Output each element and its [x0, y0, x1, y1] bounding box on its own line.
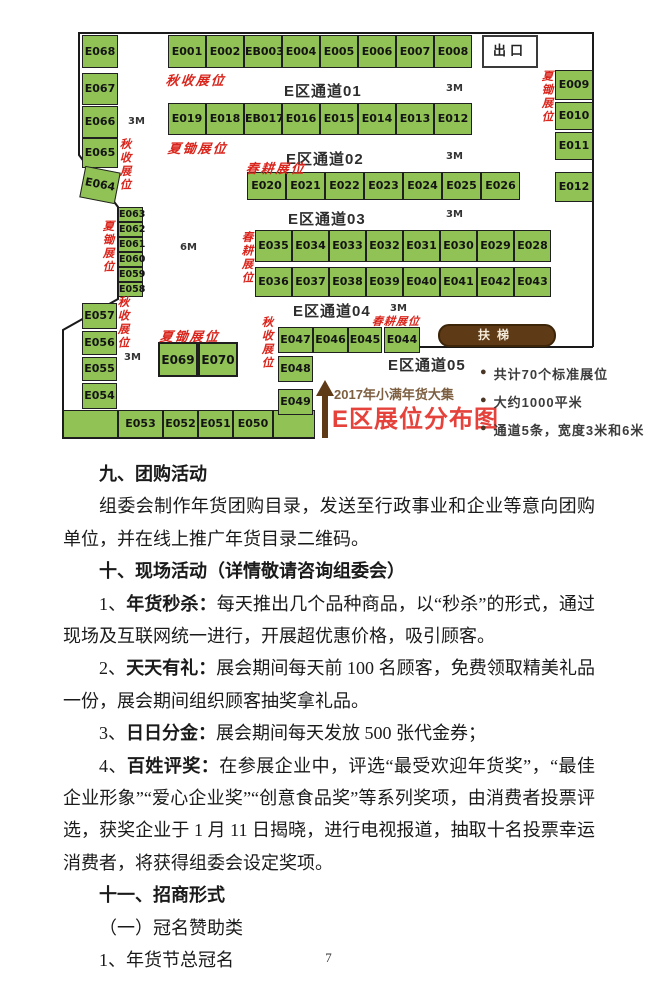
- paragraph: 3、日日分金：展会期间每天发放 500 张代金券；: [63, 717, 595, 749]
- dimension-label: 3M: [446, 83, 463, 94]
- aisle-label: E区通道03: [288, 208, 366, 229]
- booth-E039: E039: [366, 267, 403, 297]
- seasonal-label: 春耕展位: [241, 231, 253, 285]
- booth-E051: E051: [198, 410, 233, 438]
- booth-E022: E022: [325, 172, 364, 200]
- booth-E037: E037: [292, 267, 329, 297]
- booth-E031: E031: [403, 230, 440, 262]
- booth-E008: E008: [434, 35, 472, 68]
- booth-E033: E033: [329, 230, 366, 262]
- seasonal-label: 秋收展位: [119, 138, 131, 192]
- booth-E059: E059: [118, 267, 143, 282]
- dimension-label: 3M: [446, 209, 463, 220]
- booth-E014: E014: [358, 103, 396, 135]
- paragraph: 组委会制作年货团购目录，发送至行政事业和企业等意向团购单位，并在线上推广年货目录…: [63, 490, 595, 555]
- booth-E043: E043: [514, 267, 551, 297]
- booth-E004: E004: [282, 35, 320, 68]
- dimension-label: 3M: [128, 116, 145, 127]
- booth-E036: E036: [255, 267, 292, 297]
- legend-bullet-text: 共计70个标准展位: [494, 364, 608, 383]
- booth-E035: E035: [255, 230, 292, 262]
- booth-E058: E058: [118, 282, 143, 297]
- booth-E007: E007: [396, 35, 434, 68]
- run-text: 3、: [99, 723, 126, 743]
- legend-bullet-text: 大约1000平米: [494, 392, 583, 411]
- run-text: 组委会制作年货团购目录，发送至行政事业和企业等意向团购单位，并在线上推广年货目录…: [63, 496, 595, 548]
- run-text: 4、: [99, 756, 127, 776]
- booth-E056: E056: [82, 331, 117, 355]
- booth-E034: E034: [292, 230, 329, 262]
- paragraph: 2、天天有礼：展会期间每天前 100 名顾客，免费领取精美礼品一份，展会期间组织…: [63, 652, 595, 717]
- legend-bullet-item: ●通道5条，宽度3米和6米: [480, 420, 650, 439]
- booth-E032: E032: [366, 230, 403, 262]
- booth-E045: E045: [348, 327, 382, 353]
- seasonal-label: 夏锄展位: [102, 220, 114, 274]
- booth-E055: E055: [82, 357, 117, 381]
- booth-E048: E048: [278, 356, 313, 382]
- booth-E047: E047: [278, 327, 313, 353]
- section-heading: 十一、招商形式: [63, 879, 595, 911]
- booth-E041: E041: [440, 267, 477, 297]
- paragraph: 4、百姓评奖：在参展企业中，评选“最受欢迎年货奖”，“最佳企业形象”“爱心企业奖…: [63, 750, 595, 880]
- booth-EB003: EB003: [244, 35, 282, 68]
- map-title-line2: E区展位分布图: [332, 399, 499, 434]
- booth-E010: E010: [555, 102, 593, 130]
- booth-E040: E040: [403, 267, 440, 297]
- page-number: 7: [0, 950, 657, 966]
- booth-E012: E012: [555, 172, 593, 202]
- booth-E070: E070: [198, 342, 238, 377]
- run-bold: 年货秒杀：: [126, 594, 217, 614]
- booth-E023: E023: [364, 172, 403, 200]
- booth-E009: E009: [555, 70, 593, 100]
- map-legend-bullets: ●共计70个标准展位●大约1000平米●通道5条，宽度3米和6米: [480, 364, 650, 448]
- run-text: 2、: [99, 658, 126, 678]
- booth-E038: E038: [329, 267, 366, 297]
- escalator: 扶梯: [438, 324, 556, 347]
- booth-E013: E013: [396, 103, 434, 135]
- run-bold: 日日分金：: [126, 723, 216, 743]
- booth-E018: E018: [206, 103, 244, 135]
- booth-E062: E062: [118, 222, 143, 237]
- booth-E046: E046: [313, 327, 348, 353]
- booth-E028: E028: [514, 230, 551, 262]
- booth-E001: E001: [168, 35, 206, 68]
- booth-E063: E063: [118, 207, 143, 222]
- booth-E054: E054: [82, 383, 117, 409]
- booth-E026: E026: [481, 172, 520, 200]
- booth-E066: E066: [82, 106, 118, 138]
- run-text: 1、: [99, 594, 126, 614]
- booth-E029: E029: [477, 230, 514, 262]
- run-bold: 天天有礼：: [126, 658, 216, 678]
- booth-map: 出口 扶梯 2017年小满年货大集 E区展位分布图 ●共计70个标准展位●大约1…: [60, 28, 650, 458]
- run-bold: 百姓评奖：: [127, 756, 219, 776]
- seasonal-label: 夏锄展位: [541, 70, 553, 124]
- booth-E024: E024: [403, 172, 442, 200]
- booth-E030: E030: [440, 230, 477, 262]
- booth-E044: E044: [384, 327, 420, 353]
- booth-blank: [63, 410, 118, 438]
- booth-E019: E019: [168, 103, 206, 135]
- bullet-dot-icon: ●: [480, 364, 488, 381]
- booth-E050: E050: [233, 410, 273, 438]
- booth-E025: E025: [442, 172, 481, 200]
- section-heading: 十、现场活动（详情敬请咨询组委会）: [63, 555, 595, 587]
- dimension-label: 3M: [446, 151, 463, 162]
- booth-E012: E012: [434, 103, 472, 135]
- booth-E015: E015: [320, 103, 358, 135]
- aisle-label: E区通道05: [388, 354, 466, 375]
- booth-E011: E011: [555, 132, 593, 160]
- booth-E064: E064: [79, 166, 120, 204]
- seasonal-label: 夏锄展位: [167, 138, 229, 157]
- bullet-dot-icon: ●: [480, 420, 488, 437]
- paragraph: 1、年货秒杀：每天推出几个品种商品，以“秒杀”的形式，通过现场及互联网统一进行，…: [63, 588, 595, 653]
- booth-E049: E049: [278, 389, 313, 415]
- dimension-label: 6M: [180, 242, 197, 253]
- seasonal-label: 秋收展位: [165, 70, 227, 89]
- booth-E053: E053: [118, 410, 163, 438]
- exit-box: 出口: [482, 35, 538, 68]
- bullet-dot-icon: ●: [480, 392, 488, 409]
- booth-E069: E069: [158, 342, 198, 377]
- run-text: （一）冠名赞助类: [99, 918, 243, 938]
- booth-E057: E057: [82, 303, 117, 329]
- booth-E068: E068: [82, 35, 118, 68]
- booth-E052: E052: [163, 410, 198, 438]
- booth-E061: E061: [118, 237, 143, 252]
- booth-E002: E002: [206, 35, 244, 68]
- legend-bullet-item: ●共计70个标准展位: [480, 364, 650, 383]
- legend-bullet-text: 通道5条，宽度3米和6米: [494, 420, 645, 439]
- paragraph: （一）冠名赞助类: [63, 912, 595, 944]
- aisle-label: E区通道04: [293, 300, 371, 321]
- booth-E065: E065: [82, 138, 118, 168]
- booth-EB017: EB017: [244, 103, 282, 135]
- legend-bullet-item: ●大约1000平米: [480, 392, 650, 411]
- document-body: 九、团购活动组委会制作年货团购目录，发送至行政事业和企业等意向团购单位，并在线上…: [63, 458, 595, 977]
- seasonal-label: 秋收展位: [117, 296, 129, 350]
- booth-E042: E042: [477, 267, 514, 297]
- booth-E006: E006: [358, 35, 396, 68]
- aisle-label: E区通道01: [284, 80, 362, 101]
- booth-E067: E067: [82, 73, 118, 105]
- dimension-label: 3M: [124, 352, 141, 363]
- booth-E060: E060: [118, 252, 143, 267]
- seasonal-label: 春耕展位: [371, 313, 421, 329]
- booth-E016: E016: [282, 103, 320, 135]
- seasonal-label: 秋收展位: [261, 316, 273, 370]
- seasonal-label: 春耕展位: [245, 158, 307, 177]
- run-text: 展会期间每天发放 500 张代金券；: [216, 723, 486, 743]
- seasonal-label: 夏锄展位: [159, 326, 221, 345]
- booth-E005: E005: [320, 35, 358, 68]
- section-heading: 九、团购活动: [63, 458, 595, 490]
